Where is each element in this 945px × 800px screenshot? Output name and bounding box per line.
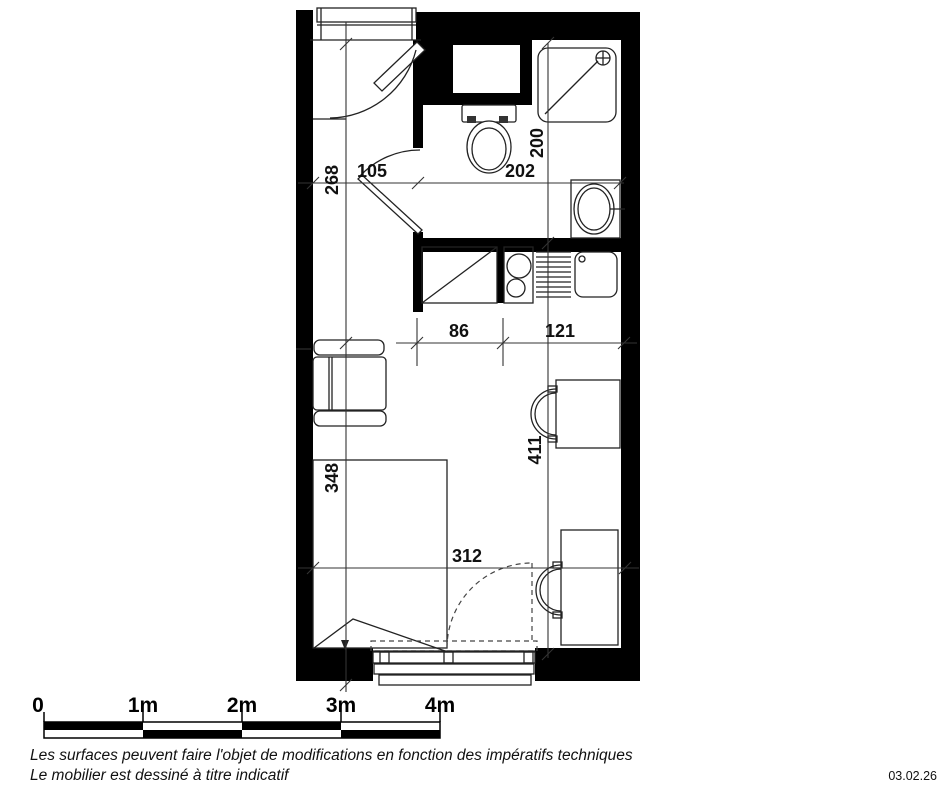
plan-date: 03.02.26: [888, 769, 937, 783]
dim-label-121: 121: [545, 321, 575, 341]
shower: [538, 48, 616, 122]
kitchen-tap: [579, 256, 585, 262]
floor-plan-page: 105 202 86 121 312 268 348 200 411 0 1m …: [0, 0, 945, 800]
dim-label-268: 268: [322, 165, 342, 195]
kitchen-sink: [575, 252, 617, 297]
scale-label-0: 0: [32, 694, 44, 717]
scale-label-3m: 3m: [326, 694, 356, 717]
dim-label-202: 202: [505, 161, 535, 181]
scale-label-1m: 1m: [128, 694, 158, 717]
wall-left: [296, 10, 313, 681]
dim-label-312: 312: [452, 546, 482, 566]
wc-cistern-niche: [453, 45, 520, 93]
armchair: [313, 340, 386, 426]
desk-lower: [561, 530, 618, 645]
scale-label-2m: 2m: [227, 694, 257, 717]
disclaimer-line-2: Le mobilier est dessiné à titre indicati…: [30, 766, 790, 786]
bathroom-door-leaf: [358, 175, 422, 234]
wall-kitchen-divider: [497, 245, 504, 303]
drainer: [536, 252, 571, 297]
window: [373, 651, 535, 685]
dim-label-200: 200: [527, 128, 547, 158]
hob: [504, 247, 533, 303]
washbasin: [571, 180, 625, 238]
wall-kitchen-bar: [413, 238, 622, 252]
wall-bottom-right: [535, 648, 640, 681]
dim-label-348: 348: [322, 463, 342, 493]
desk-upper: [556, 380, 620, 448]
disclaimer-line-1: Les surfaces peuvent faire l'objet de mo…: [30, 746, 790, 766]
wall-bottom-left: [296, 648, 373, 681]
scale-bar: 0 1m 2m 3m 4m: [32, 694, 455, 738]
dim-label-105: 105: [357, 161, 387, 181]
bed-fold-swing: [371, 563, 537, 651]
disclaimer-notes: Les surfaces peuvent faire l'objet de mo…: [30, 746, 790, 786]
dim-label-411: 411: [525, 435, 545, 464]
dim-label-86: 86: [449, 321, 469, 341]
wall-right: [621, 12, 640, 681]
scale-label-4m: 4m: [425, 694, 455, 717]
floor-plan-drawing: 105 202 86 121 312 268 348 200 411 0 1m …: [0, 0, 945, 800]
chair-lower: [536, 562, 562, 618]
wall-kitchen-stub: [413, 245, 422, 307]
entry-door: [330, 42, 425, 118]
chair-upper: [531, 386, 557, 442]
kitchenette: [422, 247, 617, 303]
